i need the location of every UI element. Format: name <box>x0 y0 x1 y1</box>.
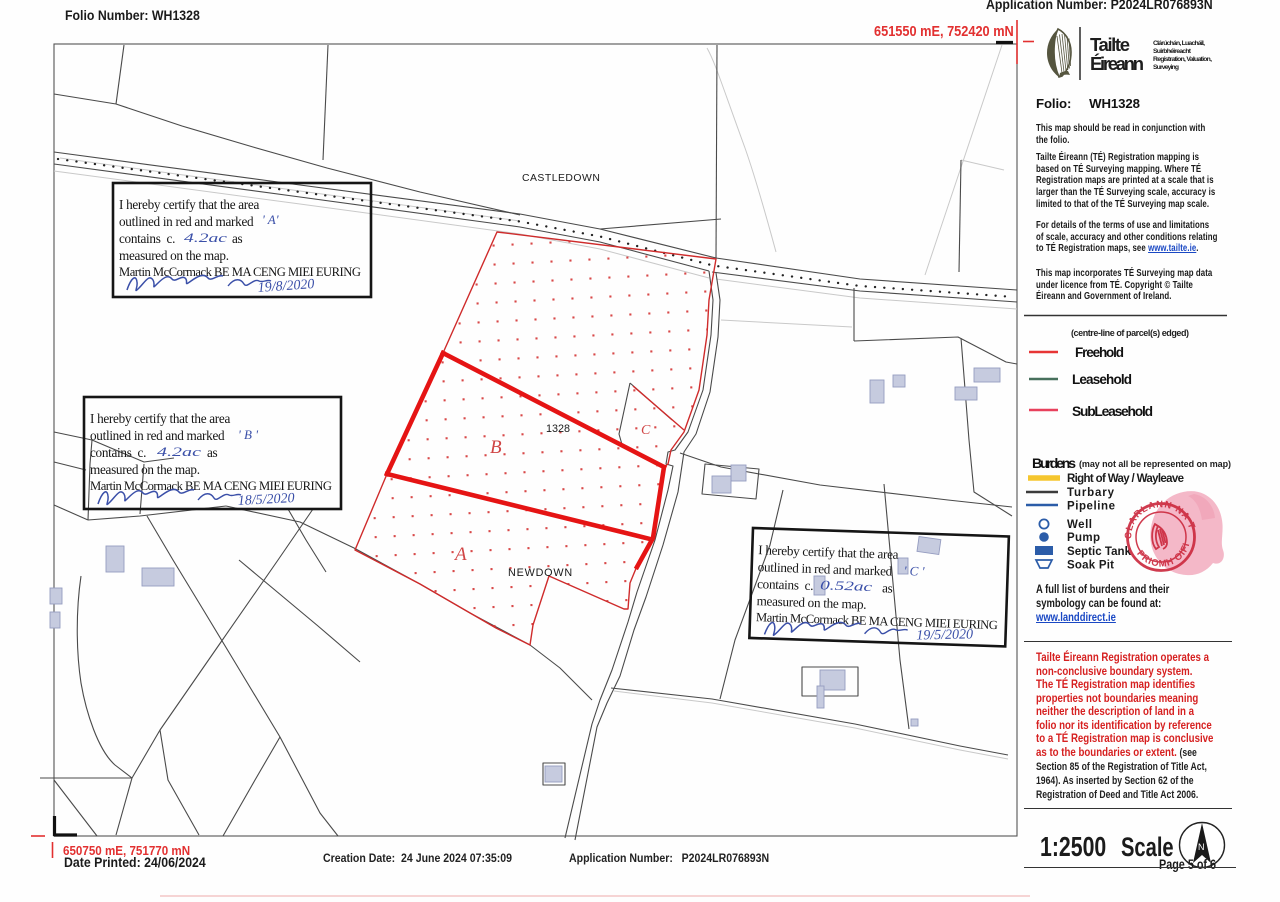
svg-text:SubLeasehold: SubLeasehold <box>1072 404 1153 419</box>
svg-text:19/5/2020: 19/5/2020 <box>916 627 973 643</box>
svg-text:' A': ' A' <box>262 212 279 227</box>
svg-text:Turbary: Turbary <box>1067 487 1115 499</box>
svg-text:(centre-line of parcel(s) edge: (centre-line of parcel(s) edged) <box>1071 328 1189 338</box>
svg-text:18/5/2020: 18/5/2020 <box>237 491 294 509</box>
svg-text:Registration, Valuation,: Registration, Valuation, <box>1153 56 1212 63</box>
svg-text:Éireann: Éireann <box>1090 53 1144 74</box>
svg-text:outlined in red and marked: outlined in red and marked <box>757 559 892 578</box>
svg-text:Leasehold: Leasehold <box>1072 372 1132 387</box>
svg-text:I hereby certify that the area: I hereby certify that the area <box>119 197 259 212</box>
svg-text:4.2ac: 4.2ac <box>157 444 201 459</box>
svg-text:CASTLEDOWN: CASTLEDOWN <box>522 173 600 184</box>
svg-text:I hereby certify that the area: I hereby certify that the area <box>758 542 899 562</box>
svg-text:1328: 1328 <box>546 423 570 435</box>
svg-text:' B ': ' B ' <box>238 427 258 442</box>
svg-text:Burdens: Burdens <box>1032 455 1076 471</box>
svg-text:outlined in red and marked: outlined in red and marked <box>90 428 225 443</box>
svg-text:Well: Well <box>1067 519 1092 531</box>
svg-text:as: as <box>207 445 218 460</box>
svg-text:measured on the map.: measured on the map. <box>90 462 200 477</box>
svg-text:measured on the map.: measured on the map. <box>119 248 229 263</box>
svg-text:Martin McCormack BE MA CENG MI: Martin McCormack BE MA CENG MIEI EURING <box>90 479 332 493</box>
svg-text:19/8/2020: 19/8/2020 <box>257 277 315 296</box>
svg-text:as: as <box>882 580 893 595</box>
svg-text:Pipeline: Pipeline <box>1067 501 1115 513</box>
svg-text:I hereby certify that the area: I hereby certify that the area <box>90 411 230 426</box>
svg-text:as: as <box>232 231 243 246</box>
svg-text:NEWDOWN: NEWDOWN <box>508 567 573 579</box>
svg-text:Soak Pit: Soak Pit <box>1067 560 1114 572</box>
svg-text:N: N <box>1198 842 1205 852</box>
svg-text:Tailte: Tailte <box>1090 34 1130 55</box>
svg-text:Freehold: Freehold <box>1075 345 1124 360</box>
svg-text:outlined in red and marked: outlined in red and marked <box>119 214 254 229</box>
svg-text:contains c.: contains c. <box>757 576 814 593</box>
svg-text:contains c.: contains c. <box>119 231 175 246</box>
svg-text:Clárúchán, Luacháil,: Clárúchán, Luacháil, <box>1153 40 1205 47</box>
svg-text:Suirbhéireacht: Suirbhéireacht <box>1153 48 1192 55</box>
svg-text:4.2ac: 4.2ac <box>184 230 227 245</box>
svg-text:Pump: Pump <box>1067 532 1100 544</box>
svg-text:' C ': ' C ' <box>903 563 924 579</box>
svg-text:0.52ac: 0.52ac <box>820 577 873 594</box>
svg-text:contains c.: contains c. <box>90 445 146 460</box>
svg-text:Martin McCormack BE MA CENG MI: Martin McCormack BE MA CENG MIEI EURING <box>119 265 361 279</box>
svg-text:C: C <box>641 423 651 438</box>
svg-text:B: B <box>490 437 502 458</box>
svg-text:measured on the map.: measured on the map. <box>756 593 866 612</box>
svg-text:A: A <box>453 544 467 565</box>
svg-text:Surveying: Surveying <box>1153 64 1179 71</box>
